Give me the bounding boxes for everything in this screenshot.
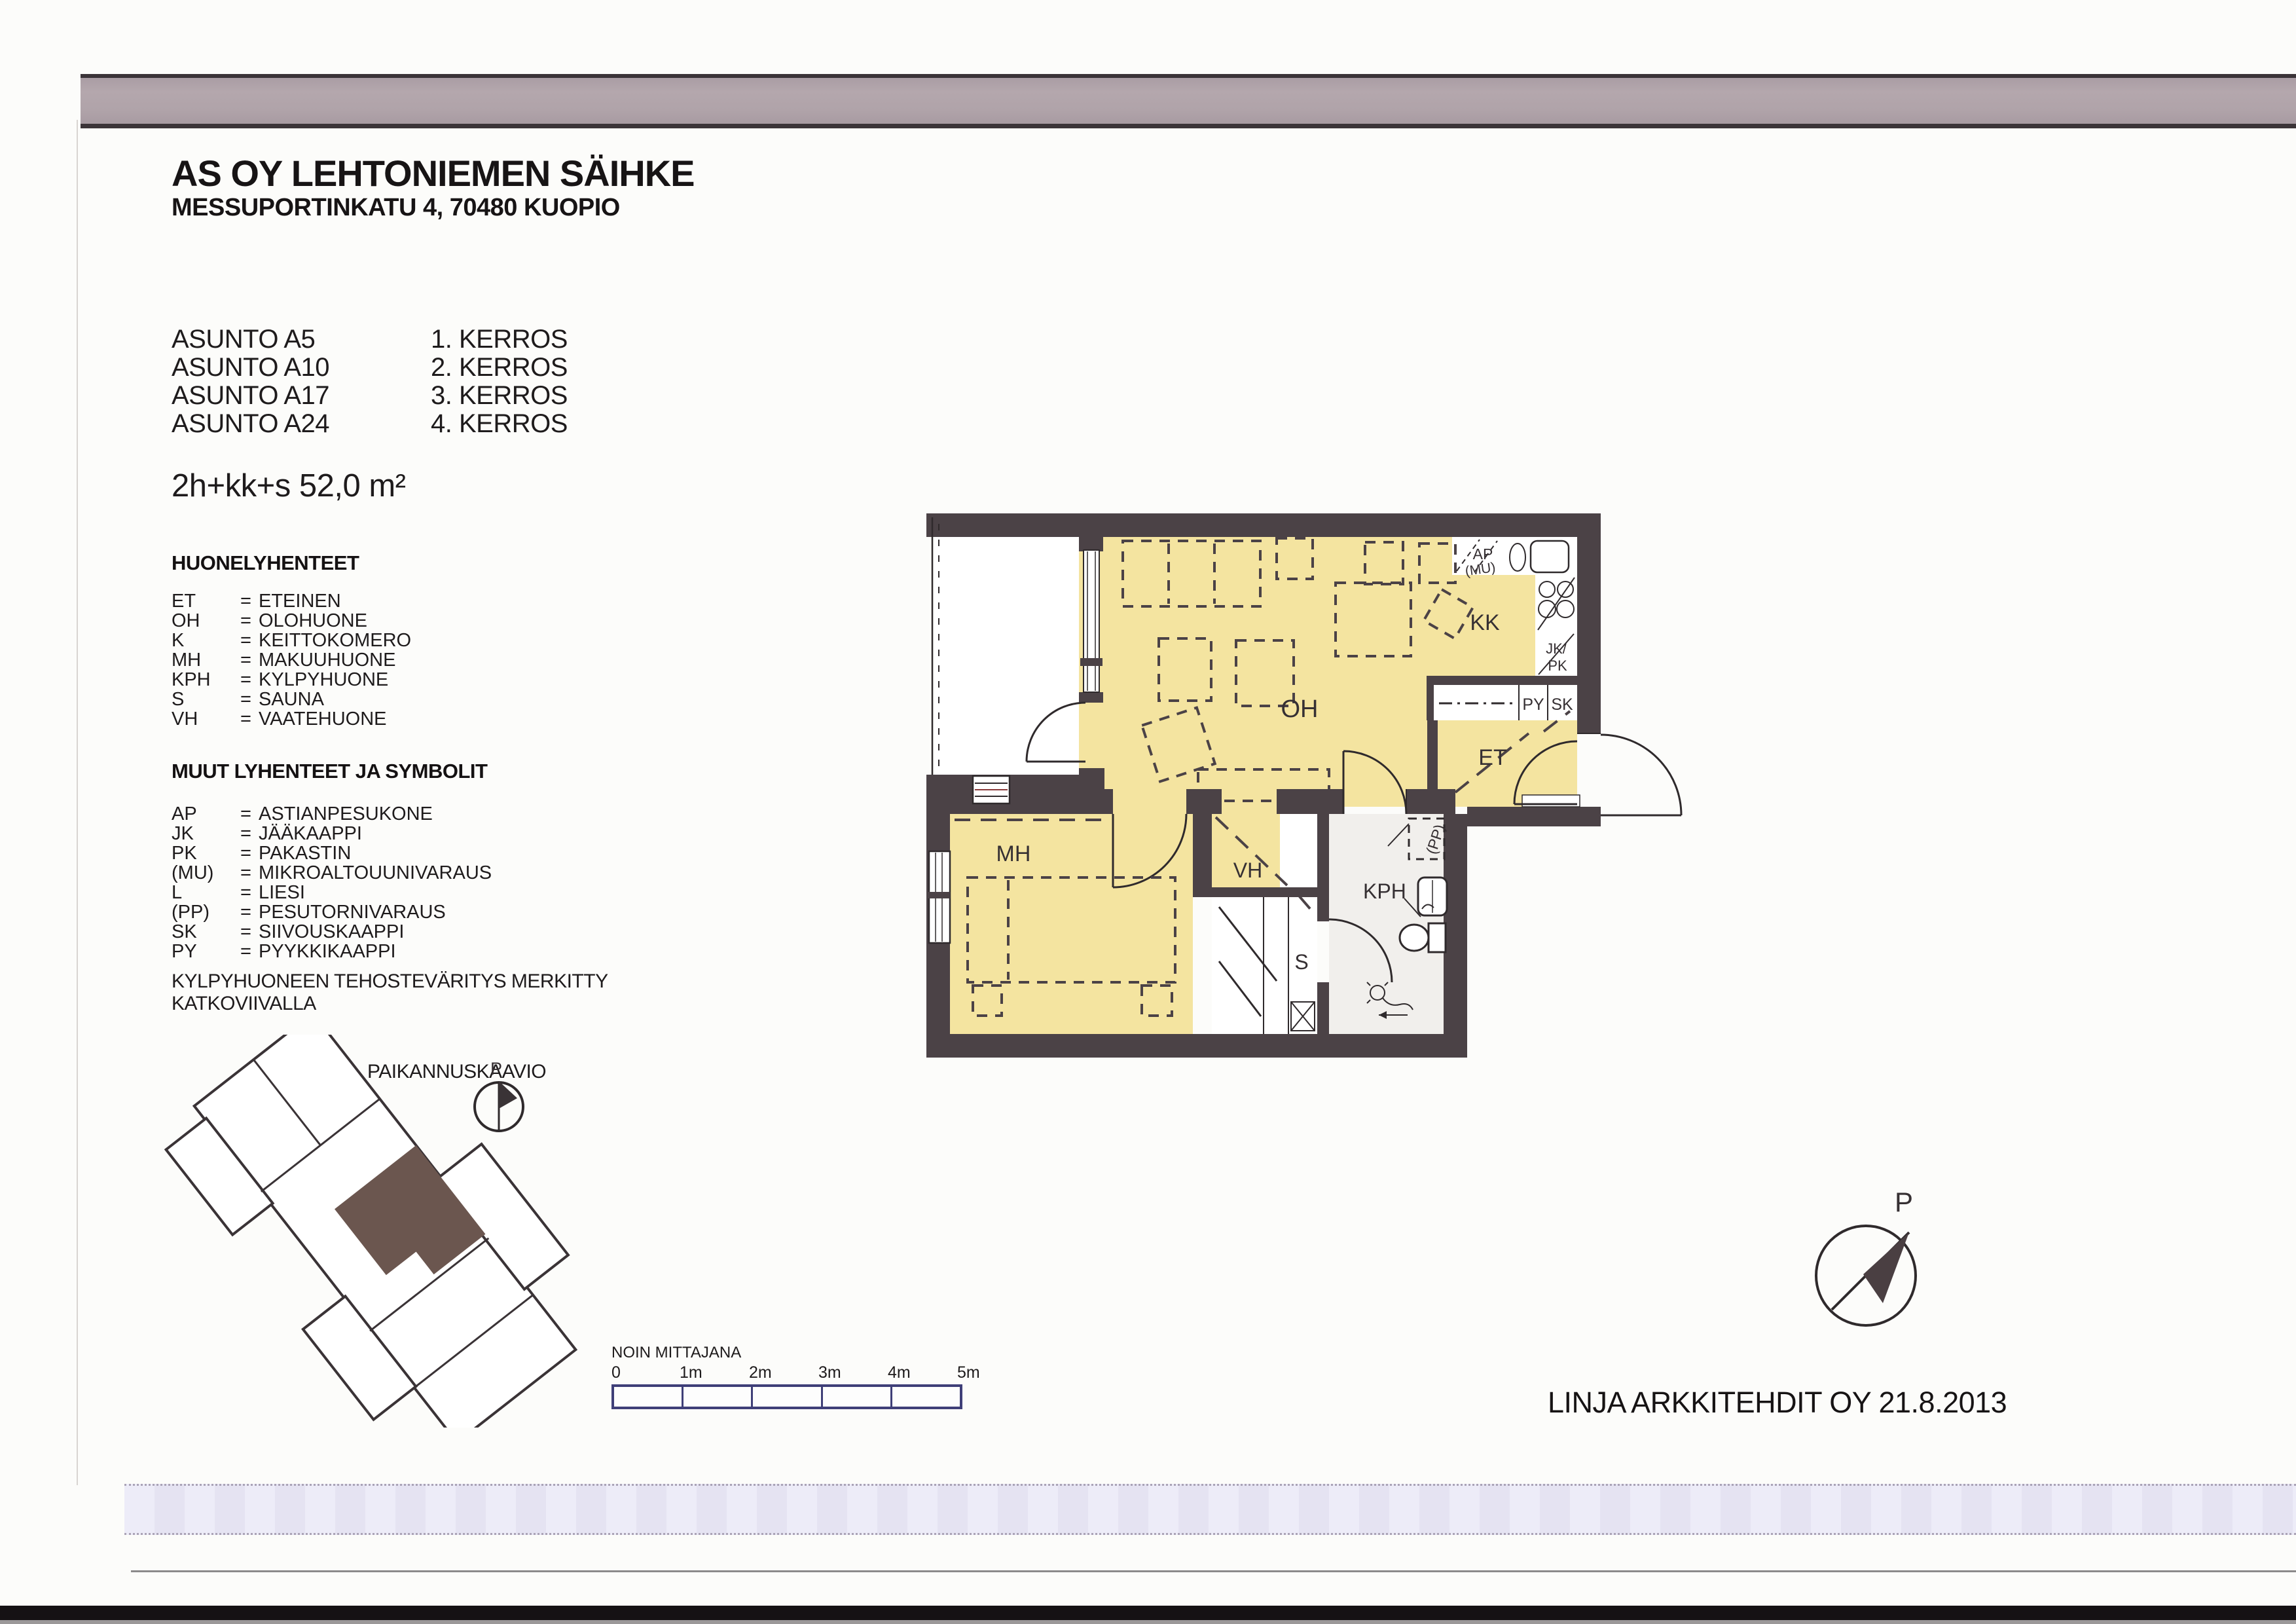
equals-sign: =	[240, 591, 259, 611]
legend-row: SK=SIIVOUSKAAPPI	[172, 922, 492, 942]
architect-credit: LINJA ARKKITEHDIT OY 21.8.2013	[1548, 1386, 2007, 1420]
scale-bar-cell	[683, 1387, 753, 1407]
equals-sign: =	[240, 883, 259, 902]
legend-name: PESUTORNIVARAUS	[259, 902, 446, 922]
equals-sign: =	[240, 690, 259, 709]
legend-name: MAKUUHUONE	[259, 650, 395, 670]
location-diagram: P	[164, 1035, 583, 1428]
apartment-unit: ASUNTO A5	[172, 325, 431, 354]
legend-abbr: SK	[172, 922, 240, 942]
label-mh: MH	[996, 841, 1031, 866]
scale-bar	[611, 1384, 962, 1409]
legend-abbr: JK	[172, 824, 240, 843]
legend-name: VAATEHUONE	[259, 709, 387, 729]
sink-icon	[1531, 541, 1569, 572]
balcony-fill	[935, 537, 1079, 775]
legend-row: VH=VAATEHUONE	[172, 709, 411, 729]
apartment-unit: ASUNTO A24	[172, 410, 431, 438]
scale-tick: 5m	[957, 1363, 980, 1382]
legend-name: PYYKKIKAAPPI	[259, 942, 396, 961]
equals-sign: =	[240, 631, 259, 650]
label-pk: PK	[1548, 657, 1567, 674]
north-label: P	[1895, 1187, 1913, 1217]
scan-edge-dark	[0, 1606, 2296, 1620]
unit-type: 2h+kk+s 52,0 m²	[172, 468, 405, 504]
scale-tick: 1m	[680, 1363, 702, 1382]
legend-name: SIIVOUSKAAPPI	[259, 922, 404, 942]
legend-row: ET=ETEINEN	[172, 591, 411, 611]
scale-tick: 4m	[888, 1363, 911, 1382]
scale-bar-heading: NOIN MITTAJANA	[611, 1344, 741, 1362]
north-label: P	[490, 1059, 502, 1079]
legend-abbr: S	[172, 690, 240, 709]
apartment-unit: ASUNTO A17	[172, 382, 431, 410]
equals-sign: =	[240, 824, 259, 843]
legend-abbr: VH	[172, 709, 240, 729]
label-et: ET	[1478, 745, 1506, 770]
legend-row: JK=JÄÄKAAPPI	[172, 824, 492, 843]
location-north-arrow: P	[475, 1059, 523, 1132]
label-kk: KK	[1470, 610, 1500, 635]
label-kph: KPH	[1363, 879, 1406, 903]
legend-abbr: K	[172, 631, 240, 650]
apartment-floor: 4. KERROS	[431, 410, 568, 438]
north-compass: P	[1800, 1175, 2016, 1392]
label-s: S	[1294, 950, 1308, 974]
scale-bar-cell	[614, 1387, 683, 1407]
equals-sign: =	[240, 709, 259, 729]
equals-sign: =	[240, 942, 259, 961]
equals-sign: =	[240, 650, 259, 670]
scan-edge-gray	[0, 1620, 2296, 1624]
apartment-list: ASUNTO A5 1. KERROS ASUNTO A10 2. KERROS…	[172, 325, 568, 438]
legend-abbr: PK	[172, 843, 240, 863]
label-vh: VH	[1233, 858, 1262, 882]
apartment-row: ASUNTO A10 2. KERROS	[172, 354, 568, 382]
scale-bar-cell	[753, 1387, 822, 1407]
legend-row: (PP)=PESUTORNIVARAUS	[172, 902, 492, 922]
equals-sign: =	[240, 611, 259, 631]
legend-abbr: OH	[172, 611, 240, 631]
legend-name: ASTIANPESUKONE	[259, 804, 433, 824]
equals-sign: =	[240, 902, 259, 922]
scale-bar-ticks: 0 1m 2m 3m 4m 5m	[611, 1363, 1004, 1383]
label-sk: SK	[1551, 695, 1573, 714]
apartment-unit: ASUNTO A10	[172, 354, 431, 382]
legend-row: MH=MAKUUHUONE	[172, 650, 411, 670]
apartment-row: ASUNTO A17 3. KERROS	[172, 382, 568, 410]
north-flag-icon	[1863, 1232, 1909, 1303]
apartment-floor: 3. KERROS	[431, 382, 568, 410]
legend-row: PK=PAKASTIN	[172, 843, 492, 863]
equals-sign: =	[240, 843, 259, 863]
note-line: KYLPYHUONEEN TEHOSTEVÄRITYS MERKITTY	[172, 970, 608, 993]
legend-abbr: MH	[172, 650, 240, 670]
legend-abbr: L	[172, 883, 240, 902]
scale-tick: 2m	[749, 1363, 772, 1382]
legend-name: PAKASTIN	[259, 843, 351, 863]
bathroom-note: KYLPYHUONEEN TEHOSTEVÄRITYS MERKITTY KAT…	[172, 970, 608, 1015]
floor-plan: OH KK ET MH VH S KPH AP (MU) JK/ PK PY S…	[917, 504, 1735, 1080]
scale-bar-cell	[892, 1387, 960, 1407]
legend-row: OH=OLOHUONE	[172, 611, 411, 631]
legend-symbols: AP=ASTIANPESUKONE JK=JÄÄKAAPPI PK=PAKAST…	[172, 804, 492, 961]
legend-abbr: ET	[172, 591, 240, 611]
legend-abbr: AP	[172, 804, 240, 824]
note-line: KATKOVIIVALLA	[172, 993, 608, 1015]
legend-name: MIKROALTOUUNIVARAUS	[259, 863, 492, 883]
legend-name: OLOHUONE	[259, 611, 367, 631]
legend-row: K=KEITTOKOMERO	[172, 631, 411, 650]
legend-row: AP=ASTIANPESUKONE	[172, 804, 492, 824]
label-py: PY	[1522, 695, 1544, 714]
legend-row: (MU)=MIKROALTOUUNIVARAUS	[172, 863, 492, 883]
legend-abbr: (PP)	[172, 902, 240, 922]
legend-name: ETEINEN	[259, 591, 341, 611]
legend-rooms-heading: HUONELYHENTEET	[172, 551, 359, 575]
apartment-floor: 1. KERROS	[431, 325, 568, 354]
legend-symbols-heading: MUUT LYHENTEET JA SYMBOLIT	[172, 760, 487, 783]
scan-band-bottom	[124, 1484, 2296, 1535]
scale-tick: 0	[611, 1363, 621, 1382]
document-title: AS OY LEHTONIEMEN SÄIHKE	[172, 152, 695, 194]
toilet-icon	[1400, 925, 1429, 951]
equals-sign: =	[240, 922, 259, 942]
scan-edge-line	[77, 120, 78, 1485]
legend-name: KEITTOKOMERO	[259, 631, 411, 650]
sink-bowl-icon	[1510, 544, 1525, 571]
document-address: MESSUPORTINKATU 4, 70480 KUOPIO	[172, 194, 620, 222]
legend-row: KPH=KYLPYHUONE	[172, 670, 411, 690]
apartment-row: ASUNTO A24 4. KERROS	[172, 410, 568, 438]
apartment-row: ASUNTO A5 1. KERROS	[172, 325, 568, 354]
legend-name: JÄÄKAAPPI	[259, 824, 362, 843]
scale-tick: 3m	[818, 1363, 841, 1382]
legend-row: S=SAUNA	[172, 690, 411, 709]
legend-rooms: ET=ETEINEN OH=OLOHUONE K=KEITTOKOMERO MH…	[172, 591, 411, 729]
apartment-floor: 2. KERROS	[431, 354, 568, 382]
legend-row: PY=PYYKKIKAAPPI	[172, 942, 492, 961]
label-jk: JK/	[1546, 640, 1567, 657]
equals-sign: =	[240, 670, 259, 690]
legend-abbr: (MU)	[172, 863, 240, 883]
room-mh-fill	[950, 814, 1193, 1034]
legend-abbr: KPH	[172, 670, 240, 690]
scan-band-top	[81, 74, 2296, 128]
scan-line	[131, 1570, 2296, 1572]
legend-row: L=LIESI	[172, 883, 492, 902]
legend-abbr: PY	[172, 942, 240, 961]
balcony-window	[1084, 550, 1099, 692]
label-oh: OH	[1281, 695, 1319, 723]
entry-exterior-door-arc	[1601, 735, 1681, 815]
equals-sign: =	[240, 804, 259, 824]
scale-bar-cell	[823, 1387, 892, 1407]
equals-sign: =	[240, 863, 259, 883]
legend-name: SAUNA	[259, 690, 324, 709]
legend-name: KYLPYHUONE	[259, 670, 388, 690]
legend-name: LIESI	[259, 883, 305, 902]
